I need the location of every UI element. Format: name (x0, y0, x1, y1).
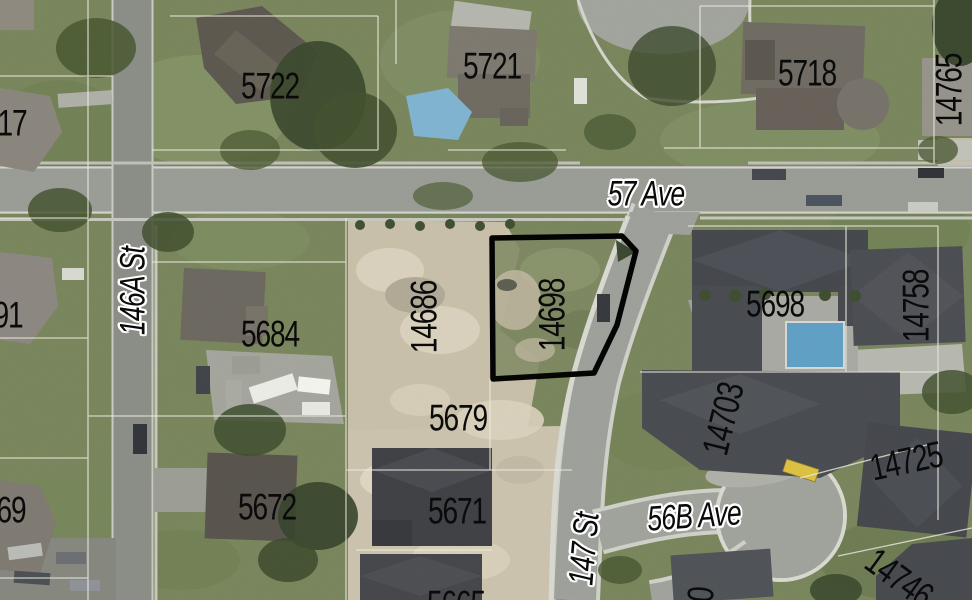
map-imagery (0, 0, 972, 600)
aerial-parcel-map[interactable]: 5722572157181476517916956841468614698569… (0, 0, 972, 600)
photo-grain-overlay (0, 0, 972, 600)
